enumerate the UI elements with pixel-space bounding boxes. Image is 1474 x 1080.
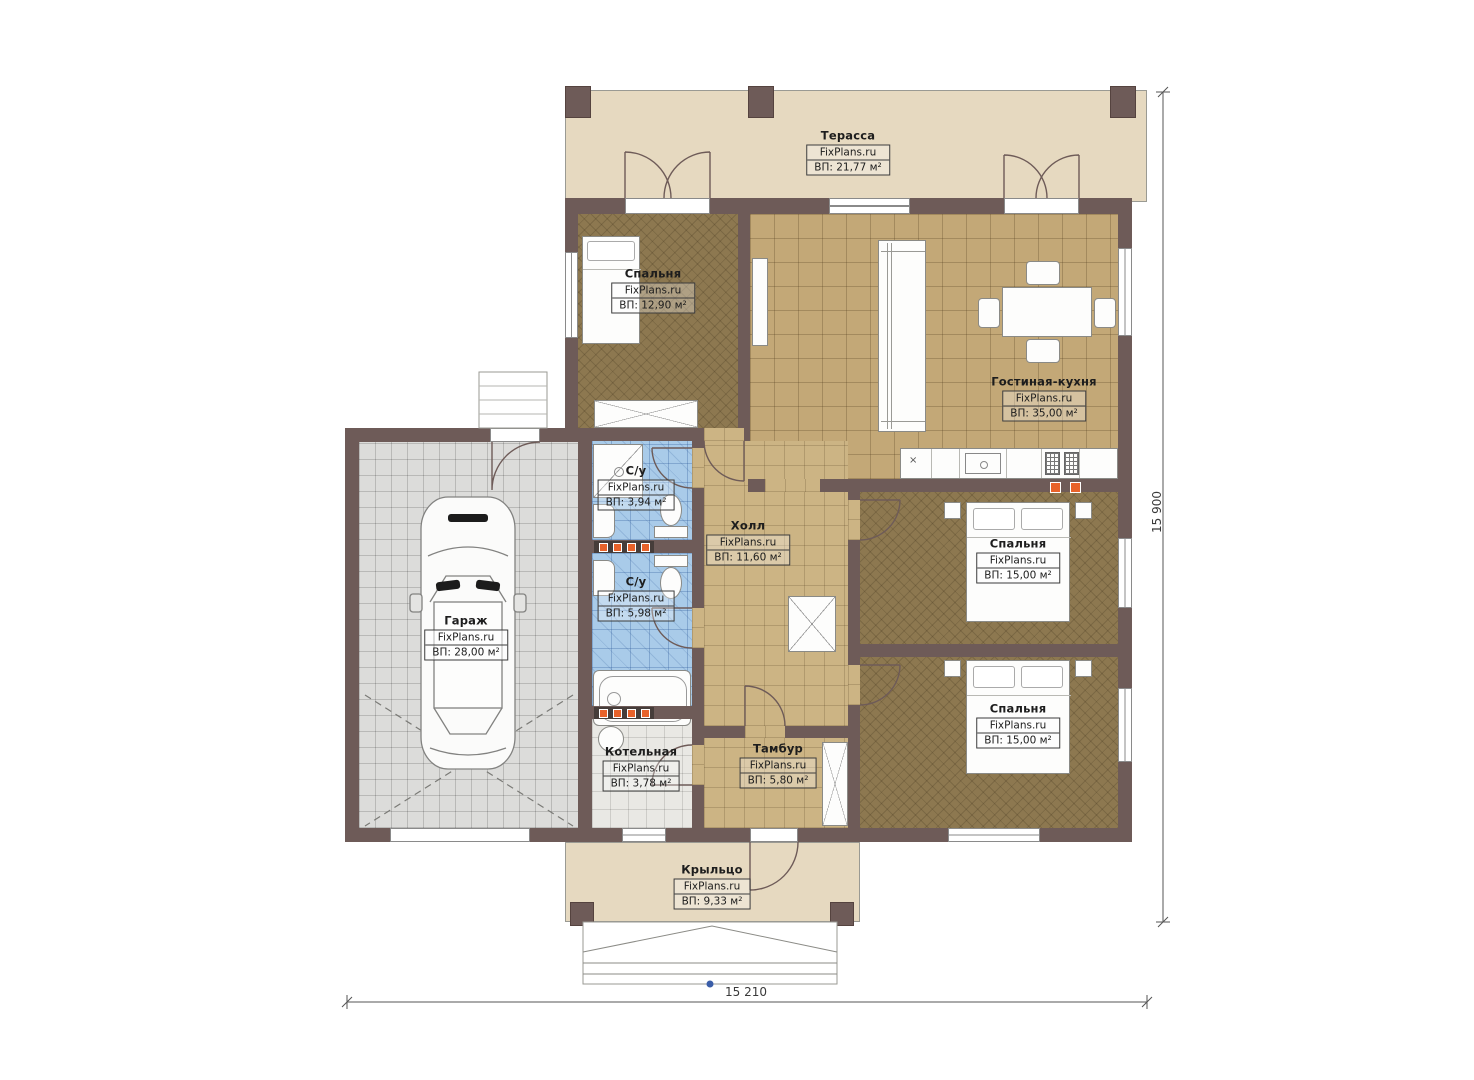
nightstand — [1075, 502, 1092, 519]
room-label-vestibule: Тамбур FixPlans.ru ВП: 5,80 м² — [740, 742, 817, 789]
toilet — [654, 526, 688, 538]
room-area: ВП: 21,77 м² — [807, 160, 889, 175]
chair — [1094, 298, 1116, 328]
door-gap-bathroom1 — [692, 448, 704, 488]
door-gap-bedroom3 — [848, 665, 860, 705]
room-area: ВП: 15,00 м² — [977, 733, 1059, 748]
room-name: Гостиная-кухня — [991, 375, 1096, 389]
door-gap-hall-living — [765, 479, 820, 492]
room-name: Котельная — [603, 745, 680, 759]
porch-column — [830, 902, 854, 926]
room-name: Гараж — [424, 614, 508, 628]
counter-symbol: × — [909, 455, 917, 466]
room-name: Спальня — [976, 702, 1060, 716]
room-label-bedroom3: Спальня FixPlans.ru ВП: 15,00 м² — [976, 702, 1060, 749]
terrace-door-opening — [1004, 198, 1079, 214]
window-bedroom3 — [1118, 688, 1132, 762]
nightstand — [944, 660, 961, 677]
wall-garage-top — [345, 428, 592, 442]
room-label-living-kitchen: Гостиная-кухня FixPlans.ru ВП: 35,00 м² — [991, 375, 1096, 422]
room-site: FixPlans.ru — [977, 554, 1059, 568]
room-area: ВП: 35,00 м² — [1003, 406, 1085, 421]
back-steps — [479, 372, 547, 428]
terrace-window — [829, 198, 910, 214]
porch-column — [570, 902, 594, 926]
room-label-bathroom1: С/у FixPlans.ru ВП: 3,94 м² — [598, 464, 675, 511]
room-area: ВП: 3,94 м² — [599, 495, 674, 510]
window-bedroom3-south — [948, 828, 1040, 842]
room-site: FixPlans.ru — [425, 631, 507, 645]
terrace-column — [565, 86, 591, 118]
radiator-strip — [594, 707, 654, 719]
room-label-bedroom1: Спальня FixPlans.ru ВП: 12,90 м² — [611, 267, 695, 314]
room-name: Холл — [706, 519, 790, 533]
wall-bedroom2-bedroom3 — [848, 644, 1132, 657]
room-label-hall: Холл FixPlans.ru ВП: 11,60 м² — [706, 519, 790, 566]
wall-bedroom1-living — [738, 214, 750, 428]
room-site: FixPlans.ru — [1003, 392, 1085, 406]
wardrobe — [594, 400, 698, 428]
terrace-door-opening — [625, 198, 710, 214]
floor-plan: × — [0, 0, 1474, 1080]
door-gap-bathroom2 — [692, 608, 704, 648]
room-area: ВП: 9,33 м² — [675, 894, 750, 909]
window-living — [1118, 248, 1132, 336]
stove-burners — [1064, 452, 1079, 475]
chair — [1026, 261, 1060, 285]
room-site: FixPlans.ru — [807, 146, 889, 160]
room-area: ВП: 5,98 м² — [599, 606, 674, 621]
nightstand — [944, 502, 961, 519]
wall-garage-left — [345, 428, 359, 842]
room-area: ВП: 28,00 м² — [425, 645, 507, 660]
dining-table — [1002, 287, 1092, 337]
room-area: ВП: 12,90 м² — [612, 298, 694, 313]
window-bedroom1 — [565, 252, 578, 338]
room-name: Тамбур — [740, 742, 817, 756]
room-label-bathroom2: С/у FixPlans.ru ВП: 5,98 м² — [598, 575, 675, 622]
stove-burners — [1045, 452, 1060, 475]
room-site: FixPlans.ru — [741, 759, 816, 773]
room-name: Терасса — [806, 129, 890, 143]
porch-steps — [583, 922, 837, 988]
room-site: FixPlans.ru — [612, 284, 694, 298]
room-label-porch: Крыльцо FixPlans.ru ВП: 9,33 м² — [674, 863, 751, 910]
room-site: FixPlans.ru — [599, 592, 674, 606]
door-gap-bedroom1 — [704, 428, 744, 441]
entrance-door-opening — [750, 828, 798, 842]
terrace-column — [1110, 86, 1136, 118]
floor-living-kitchen — [750, 214, 1118, 479]
terrace-column — [748, 86, 774, 118]
door-gap-bedroom2 — [848, 500, 860, 540]
room-site: FixPlans.ru — [707, 536, 789, 550]
hall-closet — [788, 596, 836, 652]
room-area: ВП: 15,00 м² — [977, 568, 1059, 583]
room-name: Спальня — [611, 267, 695, 281]
room-name: Крыльцо — [674, 863, 751, 877]
room-label-terrace: Терасса FixPlans.ru ВП: 21,77 м² — [806, 129, 890, 176]
room-name: С/у — [598, 464, 675, 478]
room-area: ВП: 11,60 м² — [707, 550, 789, 565]
window-boiler — [622, 828, 666, 842]
garage-gate-opening — [390, 828, 530, 842]
chair — [978, 298, 1000, 328]
room-site: FixPlans.ru — [977, 719, 1059, 733]
room-area: ВП: 3,78 м² — [604, 776, 679, 791]
room-label-boiler: Котельная FixPlans.ru ВП: 3,78 м² — [603, 745, 680, 792]
kitchen-sink — [965, 453, 1001, 474]
nightstand — [1075, 660, 1092, 677]
radiator-marker — [1050, 482, 1061, 493]
room-label-bedroom2: Спальня FixPlans.ru ВП: 15,00 м² — [976, 537, 1060, 584]
radiator-marker — [1070, 482, 1081, 493]
sofa — [878, 240, 926, 432]
chair — [1026, 339, 1060, 363]
room-site: FixPlans.ru — [675, 880, 750, 894]
room-site: FixPlans.ru — [604, 762, 679, 776]
tv-unit — [752, 258, 768, 346]
room-site: FixPlans.ru — [599, 481, 674, 495]
window-bedroom2 — [1118, 538, 1132, 608]
wall-garage-house — [578, 428, 592, 842]
door-gap-boiler — [692, 745, 704, 785]
dimension-width: 15 210 — [725, 985, 767, 999]
garage-back-door-opening — [490, 428, 540, 442]
toilet — [654, 555, 688, 567]
vestibule-closet — [822, 742, 848, 826]
room-name: С/у — [598, 575, 675, 589]
door-gap-vestibule — [745, 726, 785, 738]
radiator-strip — [594, 541, 654, 553]
dimension-height: 15 900 — [1150, 491, 1164, 533]
room-label-garage: Гараж FixPlans.ru ВП: 28,00 м² — [424, 614, 508, 661]
room-name: Спальня — [976, 537, 1060, 551]
kitchen-counter: × — [900, 448, 1118, 479]
room-area: ВП: 5,80 м² — [741, 773, 816, 788]
